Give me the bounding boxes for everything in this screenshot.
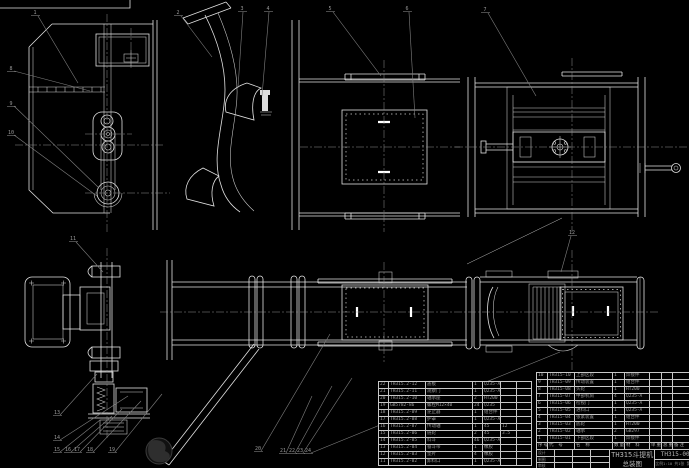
bom-cell: TH315.2-03 xyxy=(389,452,426,459)
bom-cell xyxy=(517,389,532,396)
bom-cell: 底轮 xyxy=(575,422,613,429)
bom-cell: 2 xyxy=(537,429,548,436)
bom-cell: 3.5 xyxy=(501,431,517,438)
bom-cell: 1 xyxy=(537,436,548,443)
bom-cell xyxy=(501,403,517,410)
bom-cell: TH315.2-11 xyxy=(389,389,426,396)
leader-line xyxy=(80,409,122,452)
sheet-name: 总装图 xyxy=(610,460,654,468)
bom-cell xyxy=(650,436,662,443)
bom-cell: TH315-03 xyxy=(548,422,575,429)
bom-cell: TH315-04 xyxy=(548,415,575,422)
bom-table-right: 10TH315-10上部区段1焊接件9TH315-09传动装置1组合件8TH31… xyxy=(536,372,689,450)
bom-cell xyxy=(501,382,517,389)
bom-cell xyxy=(650,415,662,422)
bom-cell: 橡胶 xyxy=(483,445,501,452)
bom-cell: 下部区段 xyxy=(575,436,613,443)
bom-cell: 12 xyxy=(379,452,389,459)
bom-cell: HT200 xyxy=(483,396,501,403)
bom-cell: 4 xyxy=(613,394,625,401)
leader-line xyxy=(303,378,352,453)
bom-cell: 1 xyxy=(613,401,625,408)
bom-cell xyxy=(673,429,689,436)
bom-cell: 22 xyxy=(379,382,389,389)
bom-cell xyxy=(662,415,673,422)
leader-line xyxy=(262,12,269,96)
bom-cell: 橡胶 xyxy=(483,452,501,459)
bom-cell xyxy=(662,401,673,408)
bom-cell: 1 xyxy=(473,459,483,466)
drawing-title: TH315斗提机 xyxy=(610,450,654,460)
bom-cell xyxy=(501,417,517,424)
bom-cell: 盖板 xyxy=(426,382,473,389)
leader-line xyxy=(60,396,128,440)
balloon-number: 7 xyxy=(483,7,486,13)
balloon-number: 11 xyxy=(70,236,76,242)
bom-table-left: 22TH315.2-12盖板1Q235-A21TH315.2-11观察门1Q23… xyxy=(378,381,532,466)
bom-cell: 检视门 xyxy=(575,401,613,408)
drawing-number: TH315-00 xyxy=(655,450,689,459)
bom-cell: 进料口 xyxy=(575,408,613,415)
bom-cell xyxy=(673,373,689,380)
bom-cell: 6 xyxy=(537,401,548,408)
bom-cell xyxy=(650,401,662,408)
bom-cell xyxy=(517,459,532,466)
bom-cell: Q235-A xyxy=(483,382,501,389)
bom-cell xyxy=(517,403,532,410)
balloon-number: 22 xyxy=(289,448,295,454)
balloon-number: 10 xyxy=(8,130,14,136)
bom-cell: TH315.2-04 xyxy=(389,445,426,452)
leader-line xyxy=(238,12,243,88)
bom-cell: TH315-07 xyxy=(548,394,575,401)
bom-cell xyxy=(517,424,532,431)
bom-cell xyxy=(501,389,517,396)
bom-cell: 11 xyxy=(379,459,389,466)
leader-line xyxy=(409,12,415,118)
bom-cell: 传动装置 xyxy=(575,380,613,387)
bom-cell xyxy=(501,410,517,417)
bom-cell: TH315.2-10 xyxy=(389,396,426,403)
bom-cell xyxy=(501,438,517,445)
bom-cell xyxy=(650,394,662,401)
bom-cell: HT200 xyxy=(625,422,650,429)
bom-cell xyxy=(662,436,673,443)
bom-cell: 头轮 xyxy=(575,387,613,394)
bom-cell: TH315-10 xyxy=(548,373,575,380)
bom-cell xyxy=(517,445,532,452)
leader-line xyxy=(561,236,571,272)
bom-cell: 焊接件 xyxy=(625,373,650,380)
leader-line xyxy=(295,386,332,453)
balloon-number: 19 xyxy=(109,447,115,453)
bom-cell: 1 xyxy=(473,445,483,452)
leader-line xyxy=(115,394,162,452)
bom-cell: 螺栓M12×40 xyxy=(426,403,473,410)
bom-cell xyxy=(673,387,689,394)
bom-cell: TH315-02 xyxy=(548,429,575,436)
bom-cell xyxy=(673,380,689,387)
leader-line xyxy=(14,71,90,91)
bom-cell: 45 xyxy=(483,424,501,431)
bom-cell: Q235-A xyxy=(625,394,650,401)
bom-cell xyxy=(650,429,662,436)
leader-line xyxy=(76,242,103,272)
drawing-canvas[interactable]: 123456789101112131415161718192021222324 … xyxy=(0,0,689,468)
bom-cell xyxy=(517,396,532,403)
title-note: 比例1:10 共1张 第1张 xyxy=(655,459,689,467)
bom-cell: TH315.2-05 xyxy=(389,438,426,445)
bom-cell: 13 xyxy=(379,445,389,452)
bom-cell: 传动轴 xyxy=(426,424,473,431)
bom-cell: 4 xyxy=(473,452,483,459)
bom-cell xyxy=(662,408,673,415)
bom-cell xyxy=(662,387,673,394)
bom-cell: TH315-05 xyxy=(548,408,575,415)
bom-cell xyxy=(673,401,689,408)
balloon-number: 23 xyxy=(297,448,303,454)
bom-cell xyxy=(662,429,673,436)
signature-grid: 设计 制图 审核 批准 xyxy=(536,449,610,468)
bom-cell xyxy=(517,382,532,389)
bom-cell xyxy=(673,415,689,422)
title-block: 设计 制图 审核 批准 TH315斗提机 总装图 TH315-00 比例1:10… xyxy=(536,449,689,468)
bom-cell: 上部区段 xyxy=(575,373,613,380)
balloon-number: 9 xyxy=(9,101,12,107)
bom-cell: 9 xyxy=(537,380,548,387)
balloon-number: 3 xyxy=(240,6,243,12)
leader-line xyxy=(38,16,78,83)
bom-cell: TH315-09 xyxy=(548,380,575,387)
bom-cell: TH315.2-12 xyxy=(389,382,426,389)
bom-cell xyxy=(650,380,662,387)
bom-cell: Q235-A xyxy=(483,459,501,466)
balloon-number: 16 xyxy=(65,447,71,453)
bom-cell xyxy=(517,410,532,417)
bom-cell: GB5782-86 xyxy=(389,403,426,410)
bom-cell xyxy=(650,373,662,380)
bom-cell: 1 xyxy=(613,422,625,429)
bom-cell: 5 xyxy=(537,408,548,415)
bom-cell: 2 xyxy=(473,431,483,438)
leader-line xyxy=(261,334,330,451)
bom-cell xyxy=(650,387,662,394)
bom-cell xyxy=(673,408,689,415)
bom-cell: 1 xyxy=(613,415,625,422)
bom-cell: 12 xyxy=(501,424,517,431)
leader-line xyxy=(60,374,97,415)
bom-cell: 21 xyxy=(379,389,389,396)
bom-cell: Q235-A xyxy=(483,417,501,424)
balloon-number: 21 xyxy=(280,448,286,454)
bom-cell: 料斗 xyxy=(426,438,473,445)
leader-line xyxy=(14,135,97,196)
bom-cell: 张紧装置 xyxy=(575,415,613,422)
balloon-number: 1 xyxy=(33,10,36,16)
bom-cell xyxy=(673,422,689,429)
bom-cell xyxy=(501,459,517,466)
leader-line xyxy=(14,106,99,188)
bom-cell: 15 xyxy=(379,431,389,438)
bom-cell xyxy=(662,380,673,387)
balloon-number: 2 xyxy=(176,10,179,16)
bom-cell: 46 xyxy=(473,438,483,445)
bom-cell: 19 xyxy=(379,403,389,410)
bom-cell: TH315.2-06 xyxy=(389,431,426,438)
bom-cell: 轴承座 xyxy=(426,396,473,403)
bom-cell: Q235-A xyxy=(483,438,501,445)
balloon-number: 12 xyxy=(569,230,575,236)
bom-cell: 10 xyxy=(537,373,548,380)
bom-cell: 1 xyxy=(613,408,625,415)
bom-cell: 1 xyxy=(473,382,483,389)
bom-cell xyxy=(517,431,532,438)
bom-cell: 护罩 xyxy=(426,417,473,424)
bom-cell: 1 xyxy=(473,417,483,424)
bom-cell: 2 xyxy=(613,429,625,436)
bom-cell: 组合件 xyxy=(483,410,501,417)
bom-cell: 卸料口 xyxy=(426,459,473,466)
bom-cell xyxy=(673,394,689,401)
bom-cell: HT200 xyxy=(625,387,650,394)
bom-cell: TH315.2-08 xyxy=(389,417,426,424)
bom-cell: TH315.2-07 xyxy=(389,424,426,431)
bom-cell: 24 xyxy=(473,403,483,410)
bom-cell: 组合件 xyxy=(625,380,650,387)
bom-cell xyxy=(662,373,673,380)
bom-cell: TH315-08 xyxy=(548,387,575,394)
bom-cell: 畚斗带 xyxy=(426,445,473,452)
balloon-number: 13 xyxy=(54,410,60,416)
bom-cell: 观察门 xyxy=(426,389,473,396)
bom-cell: 轴承 xyxy=(575,429,613,436)
bom-cell xyxy=(650,408,662,415)
bom-cell: 组合件 xyxy=(625,415,650,422)
bom-cell: TH315.2-09 xyxy=(389,410,426,417)
bom-cell: 1 xyxy=(473,389,483,396)
leader-line xyxy=(181,16,212,57)
balloon-number: 24 xyxy=(305,448,311,454)
bom-cell xyxy=(517,438,532,445)
bom-cell: 16 xyxy=(379,424,389,431)
bom-cell: 1 xyxy=(473,410,483,417)
bom-cell: 1 xyxy=(613,373,625,380)
bom-cell xyxy=(662,394,673,401)
bom-cell: Q235-A xyxy=(483,389,501,396)
drawing-number-cell: TH315-00 比例1:10 共1张 第1张 xyxy=(655,449,689,468)
bom-cell: 7 xyxy=(537,394,548,401)
bom-cell: 14 xyxy=(379,438,389,445)
balloon-number: 5 xyxy=(328,6,331,12)
bom-cell: 链轮 xyxy=(426,431,473,438)
bom-cell: GB297 xyxy=(625,429,650,436)
leader-line xyxy=(333,12,381,76)
sig-label: 审核 xyxy=(537,463,555,468)
bom-cell: 17 xyxy=(379,417,389,424)
balloon-number: 6 xyxy=(405,6,408,12)
bom-cell: 1 xyxy=(613,380,625,387)
bom-cell: 8 xyxy=(537,387,548,394)
bom-cell: 焊接件 xyxy=(625,436,650,443)
bom-cell: 20 xyxy=(379,396,389,403)
balloon-number: 8 xyxy=(9,66,12,72)
bom-cell: TH315-06 xyxy=(548,401,575,408)
balloon-number: 14 xyxy=(54,435,60,441)
bom-cell: 3 xyxy=(537,422,548,429)
leader-line xyxy=(286,396,312,453)
bom-cell: 45 xyxy=(483,431,501,438)
bom-cell xyxy=(501,452,517,459)
bom-cell: Q235 xyxy=(483,403,501,410)
bom-cell: TH315.2-02 xyxy=(389,459,426,466)
bom-cell: 1 xyxy=(613,387,625,394)
bom-cell: 1 xyxy=(613,436,625,443)
balloon-number: 20 xyxy=(255,446,261,452)
bom-cell: Q235-A xyxy=(625,401,650,408)
bom-cell xyxy=(501,445,517,452)
bom-cell xyxy=(673,436,689,443)
bom-cell xyxy=(517,417,532,424)
leader-line xyxy=(488,13,536,96)
bom-cell: 18 xyxy=(379,410,389,417)
balloon-number: 4 xyxy=(266,6,269,12)
bom-cell: 垫片 xyxy=(426,452,473,459)
balloon-number: 15 xyxy=(54,447,60,453)
drawing-title-cell: TH315斗提机 总装图 xyxy=(610,449,655,468)
bom-cell xyxy=(501,396,517,403)
balloon-number: 17 xyxy=(74,447,80,453)
bom-cell: 中部机筒 xyxy=(575,394,613,401)
bom-cell: Q235-A xyxy=(625,408,650,415)
bom-cell: 2 xyxy=(473,396,483,403)
bom-cell: TH315-01 xyxy=(548,436,575,443)
bom-cell xyxy=(662,422,673,429)
bom-cell xyxy=(517,452,532,459)
bom-cell xyxy=(650,422,662,429)
bom-cell: 4 xyxy=(537,415,548,422)
bom-cell: 逆止器 xyxy=(426,410,473,417)
bom-cell: 1 xyxy=(473,424,483,431)
balloon-number: 18 xyxy=(87,447,93,453)
